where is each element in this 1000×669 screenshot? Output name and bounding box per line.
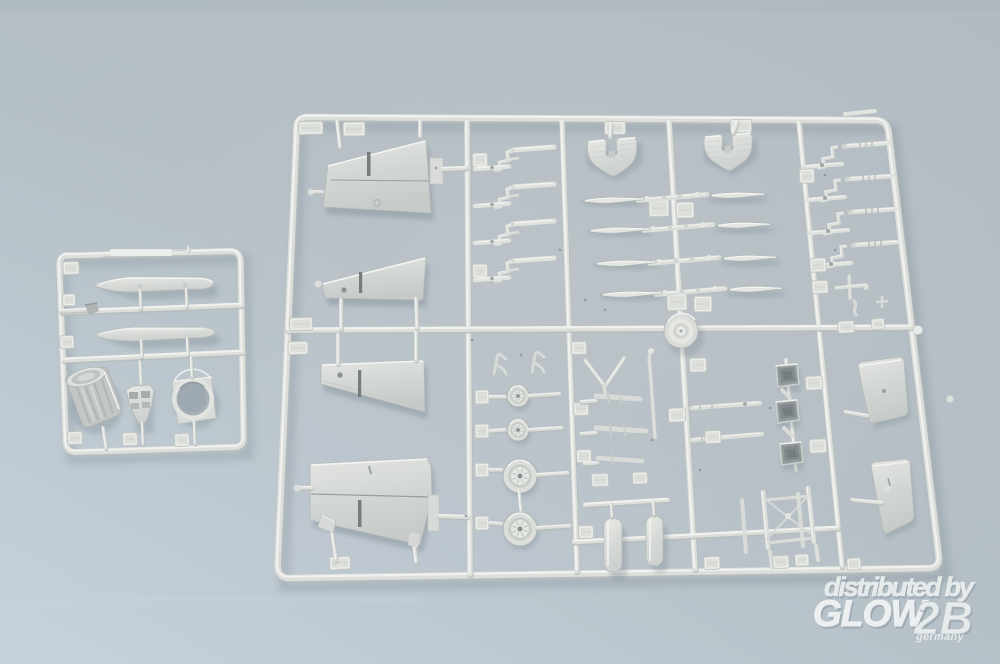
svg-text:germany: germany (915, 631, 965, 643)
svg-text:GLOW: GLOW (813, 593, 929, 634)
